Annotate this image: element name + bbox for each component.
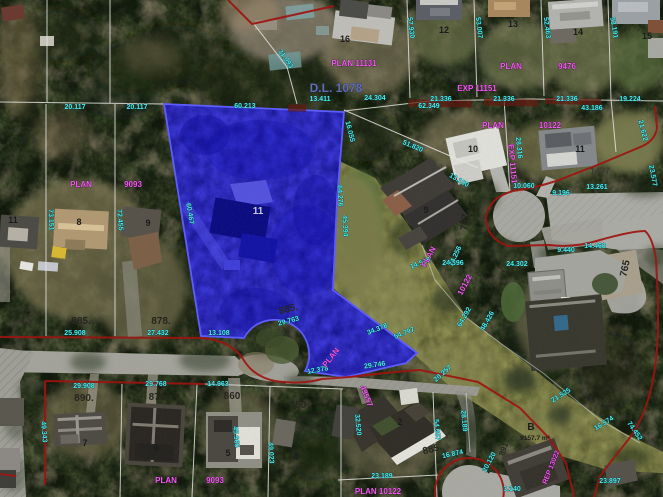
svg-text:9.196: 9.196 <box>552 190 570 197</box>
svg-text:23.897: 23.897 <box>599 478 621 485</box>
svg-text:9093: 9093 <box>206 476 224 485</box>
svg-text:21.336: 21.336 <box>493 96 515 103</box>
svg-text:27.432: 27.432 <box>147 330 169 337</box>
svg-text:45.394: 45.394 <box>340 215 348 237</box>
svg-text:9157.7 m²: 9157.7 m² <box>520 435 550 442</box>
svg-text:23.189: 23.189 <box>371 473 393 480</box>
svg-text:12: 12 <box>439 25 449 35</box>
svg-text:72.455: 72.455 <box>115 209 123 231</box>
svg-text:29.768: 29.768 <box>145 381 167 388</box>
svg-text:24.304: 24.304 <box>364 95 386 102</box>
svg-text:21.336: 21.336 <box>556 96 578 103</box>
svg-text:PLAN: PLAN <box>70 180 92 189</box>
svg-text:6: 6 <box>153 443 158 453</box>
svg-text:13.108: 13.108 <box>208 330 230 337</box>
svg-text:11: 11 <box>8 215 18 225</box>
svg-text:PLAN: PLAN <box>500 62 522 71</box>
svg-text:13.411: 13.411 <box>309 96 330 103</box>
svg-text:20.117: 20.117 <box>64 104 85 111</box>
svg-text:2: 2 <box>397 417 402 427</box>
svg-text:10.060: 10.060 <box>513 183 535 190</box>
svg-text:5: 5 <box>225 448 230 458</box>
svg-text:9: 9 <box>423 205 428 215</box>
svg-text:767.: 767. <box>459 210 472 231</box>
svg-text:13.261: 13.261 <box>586 184 608 191</box>
svg-text:PLAN 10122: PLAN 10122 <box>355 487 402 496</box>
svg-text:860: 860 <box>224 391 241 402</box>
svg-text:878.: 878. <box>151 316 171 327</box>
svg-text:25.908: 25.908 <box>64 330 86 337</box>
svg-text:PLAN: PLAN <box>155 476 177 485</box>
svg-text:62.349: 62.349 <box>418 103 440 110</box>
svg-text:890.: 890. <box>74 393 94 404</box>
svg-text:B: B <box>527 422 534 433</box>
svg-text:11: 11 <box>253 206 264 217</box>
svg-text:885.: 885. <box>71 316 91 327</box>
svg-text:PLAN: PLAN <box>482 121 504 130</box>
svg-text:4: 4 <box>293 452 298 462</box>
svg-text:20.117: 20.117 <box>126 104 147 111</box>
svg-text:10122: 10122 <box>539 121 562 130</box>
svg-text:14: 14 <box>573 27 583 37</box>
svg-text:PLAN 11131: PLAN 11131 <box>331 59 377 68</box>
svg-text:10: 10 <box>468 144 478 154</box>
svg-text:7: 7 <box>82 438 87 448</box>
svg-text:14.963: 14.963 <box>207 381 229 388</box>
svg-text:8: 8 <box>76 217 81 227</box>
svg-text:13: 13 <box>508 19 518 29</box>
svg-text:21.336: 21.336 <box>430 96 452 103</box>
svg-text:64.276: 64.276 <box>335 185 343 207</box>
svg-text:9.440: 9.440 <box>557 247 575 254</box>
svg-text:9093: 9093 <box>124 180 142 189</box>
svg-text:14.468: 14.468 <box>584 243 606 250</box>
svg-text:16: 16 <box>340 34 350 44</box>
svg-text:11: 11 <box>575 144 585 154</box>
svg-text:19.224: 19.224 <box>619 96 641 103</box>
svg-text:49.343: 49.343 <box>39 421 47 443</box>
svg-text:870: 870 <box>149 392 166 403</box>
svg-text:49.023: 49.023 <box>266 442 274 464</box>
svg-text:3.140: 3.140 <box>503 486 521 493</box>
svg-text:EXP 11151: EXP 11151 <box>457 84 497 93</box>
svg-text:9476: 9476 <box>558 62 576 71</box>
svg-text:29.908: 29.908 <box>73 383 95 390</box>
svg-text:1477: 1477 <box>590 166 610 176</box>
svg-text:D.L. 1078: D.L. 1078 <box>310 81 363 95</box>
svg-text:9: 9 <box>145 218 150 228</box>
svg-text:60.213: 60.213 <box>234 103 256 110</box>
svg-text:43.186: 43.186 <box>581 105 603 112</box>
svg-text:850: 850 <box>290 400 307 411</box>
svg-text:15: 15 <box>642 31 652 41</box>
svg-text:73.151: 73.151 <box>47 209 55 231</box>
svg-text:24.302: 24.302 <box>506 261 528 268</box>
